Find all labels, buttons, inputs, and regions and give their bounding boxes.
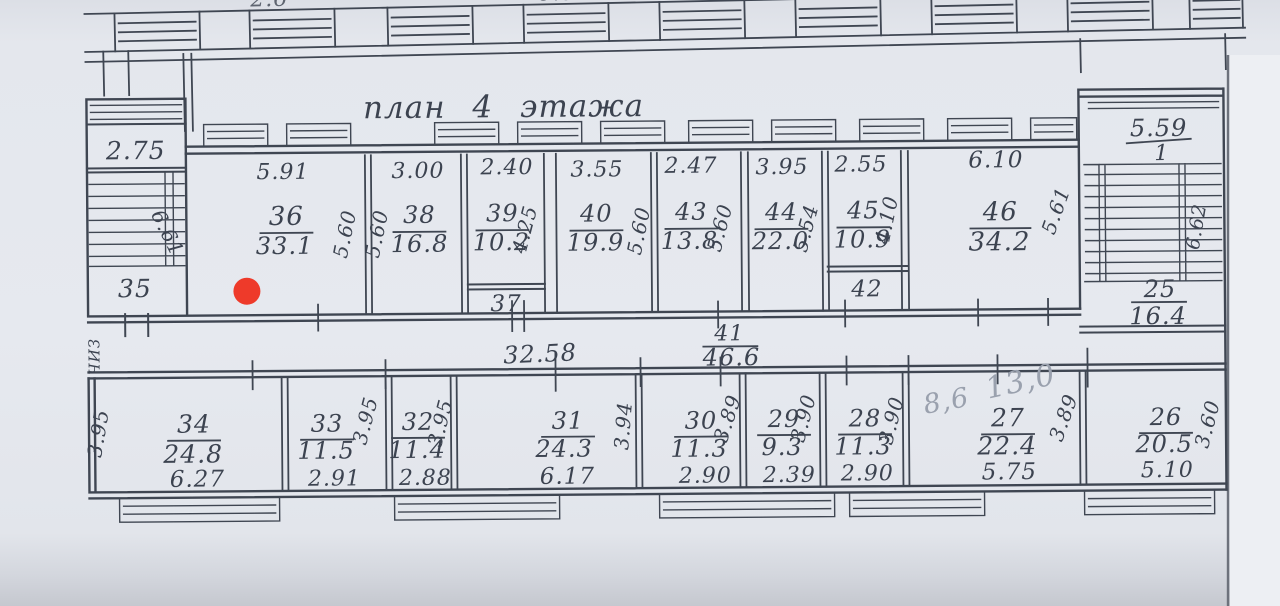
room-25-area: 16.4 xyxy=(1129,302,1187,330)
bottom-row-windows xyxy=(120,490,1215,523)
room-width-dim: 2.55 xyxy=(833,152,887,177)
room-38: 38 16.8 3.00 5.60 xyxy=(359,159,448,260)
right-stair-width: 5.59 xyxy=(1130,114,1188,142)
room-33: 33 11.5 2.91 3.95 xyxy=(297,394,384,492)
room-width-dim: 6.10 xyxy=(968,147,1023,173)
room-area: 19.9 xyxy=(567,228,625,256)
room-width-dim: 6.27 xyxy=(170,466,225,492)
room-area: 20.5 xyxy=(1134,430,1193,458)
room-area: 33.1 xyxy=(256,232,314,260)
side-annotation: ЧИЗ xyxy=(85,338,103,375)
room-side-dim: 3.89 xyxy=(1044,391,1083,445)
upper-floor-cutoff-strip: 2.6 6.89 2.15 2.45 xyxy=(84,0,1247,133)
room-width-dim: 2.39 xyxy=(762,463,816,488)
fourth-floor-plan: план 4 этажа xyxy=(79,84,1226,523)
room-number: 33 xyxy=(311,409,344,437)
room-width-dim: 3.00 xyxy=(391,159,444,184)
room-area: 22.4 xyxy=(976,431,1037,460)
left-stair-dim: 6.61 xyxy=(146,206,189,260)
room-side-dim: 5.61 xyxy=(1036,184,1075,238)
room-side-dim: 3.60 xyxy=(1190,397,1225,450)
room-side-dim: 3.95 xyxy=(82,407,114,459)
room-width-dim: 2.88 xyxy=(398,466,452,491)
room-25-number: 25 xyxy=(1143,275,1177,303)
room-side-dim: 3.90 xyxy=(785,392,820,445)
left-stair-room-number: 35 xyxy=(118,274,152,303)
room-30: 30 11.3 2.90 3.89 xyxy=(670,391,747,489)
room-width-dim: 2.90 xyxy=(840,461,894,486)
room-29: 29 9.3 2.39 3.90 xyxy=(761,391,821,488)
room-number: 34 xyxy=(177,410,211,439)
room-number: 38 xyxy=(403,201,436,229)
room-number: 27 xyxy=(990,403,1025,432)
right-stairwell-labels: 5.59 1 6.62 25 16.4 xyxy=(1128,114,1212,331)
scanned-floor-plan: 2.6 6.89 2.15 2.45 план 4 этажа xyxy=(0,0,1280,606)
room-43: 43 13.8 2.47 5.60 xyxy=(660,153,738,255)
red-location-marker xyxy=(233,278,260,305)
room-46: 46 34.2 6.10 5.61 xyxy=(968,147,1076,258)
room-39: 39 10.2 2.40 4.25 xyxy=(472,155,543,257)
corridor-area: 46.6 xyxy=(702,343,761,371)
plan-title: план 4 этажа xyxy=(363,88,644,126)
room-31: 31 24.3 6.17 3.94 xyxy=(534,400,638,490)
room-44: 44 22.0 3.95 5.54 xyxy=(750,155,824,256)
room-number: 26 xyxy=(1149,403,1183,431)
room-side-dim: 5.60 xyxy=(328,208,361,260)
room-26: 26 20.5 5.10 3.60 xyxy=(1134,397,1225,483)
room-number: 46 xyxy=(982,197,1018,227)
room-side-dim: 3.95 xyxy=(347,394,382,447)
room-number: 31 xyxy=(552,407,585,435)
room-width-dim: 5.10 xyxy=(1141,458,1194,483)
room-37-number: 37 xyxy=(490,291,521,317)
room-width-dim: 2.91 xyxy=(307,466,361,491)
room-34: 34 24.8 6.27 3.95 xyxy=(82,406,225,493)
pencil-note-8-6: 8,6 xyxy=(921,382,972,421)
room-36: 36 33.1 5.91 5.60 xyxy=(255,159,361,261)
room-28: 28 11.3 2.90 3.90 xyxy=(834,394,910,487)
room-area: 16.8 xyxy=(391,230,449,258)
room-45: 45 10.9 2.55 4.10 xyxy=(833,152,903,254)
room-area: 24.8 xyxy=(162,439,223,468)
room-number: 40 xyxy=(579,199,613,227)
room-number: 44 xyxy=(764,198,798,226)
room-side-dim: 5.60 xyxy=(622,205,655,257)
room-width-dim: 5.75 xyxy=(982,459,1037,485)
upper-dim-fragment-1: 2.6 xyxy=(249,0,289,13)
room-number: 36 xyxy=(269,202,304,232)
upper-dim-fragment-2: 6.89 xyxy=(537,0,590,7)
right-stair-flight: 1 xyxy=(1154,141,1169,166)
left-stair-width: 2.75 xyxy=(105,136,166,165)
room-32: 32 11.4 2.88 3.95 xyxy=(388,396,459,491)
room-side-dim: 3.94 xyxy=(609,401,637,451)
right-stair-dim: 6.62 xyxy=(1182,202,1211,251)
paper-edge xyxy=(1228,55,1280,606)
room-width-dim: 2.40 xyxy=(479,155,533,180)
room-number: 43 xyxy=(674,198,708,226)
room-width-dim: 3.95 xyxy=(755,155,808,180)
room-side-dim: 3.95 xyxy=(422,396,457,449)
room-40: 40 19.9 3.55 5.60 xyxy=(566,157,655,257)
room-42-number: 42 xyxy=(850,276,882,302)
room-width-dim: 6.17 xyxy=(540,463,595,489)
room-width-dim: 5.91 xyxy=(256,160,309,185)
walls xyxy=(86,89,1226,523)
room-area: 34.2 xyxy=(968,227,1030,257)
room-width-dim: 3.55 xyxy=(570,157,623,182)
room-area: 24.3 xyxy=(534,435,593,463)
room-27: 27 22.4 5.75 3.89 8,6 13,0 xyxy=(921,357,1084,486)
room-area: 11.5 xyxy=(297,436,355,464)
room-width-dim: 2.90 xyxy=(678,463,732,488)
corridor-labels: 32.58 41 46.6 xyxy=(503,321,761,373)
room-width-dim: 2.47 xyxy=(663,154,717,179)
floor-plan-drawing: 2.6 6.89 2.15 2.45 план 4 этажа xyxy=(0,0,1280,606)
corridor-length: 32.58 xyxy=(503,338,578,369)
